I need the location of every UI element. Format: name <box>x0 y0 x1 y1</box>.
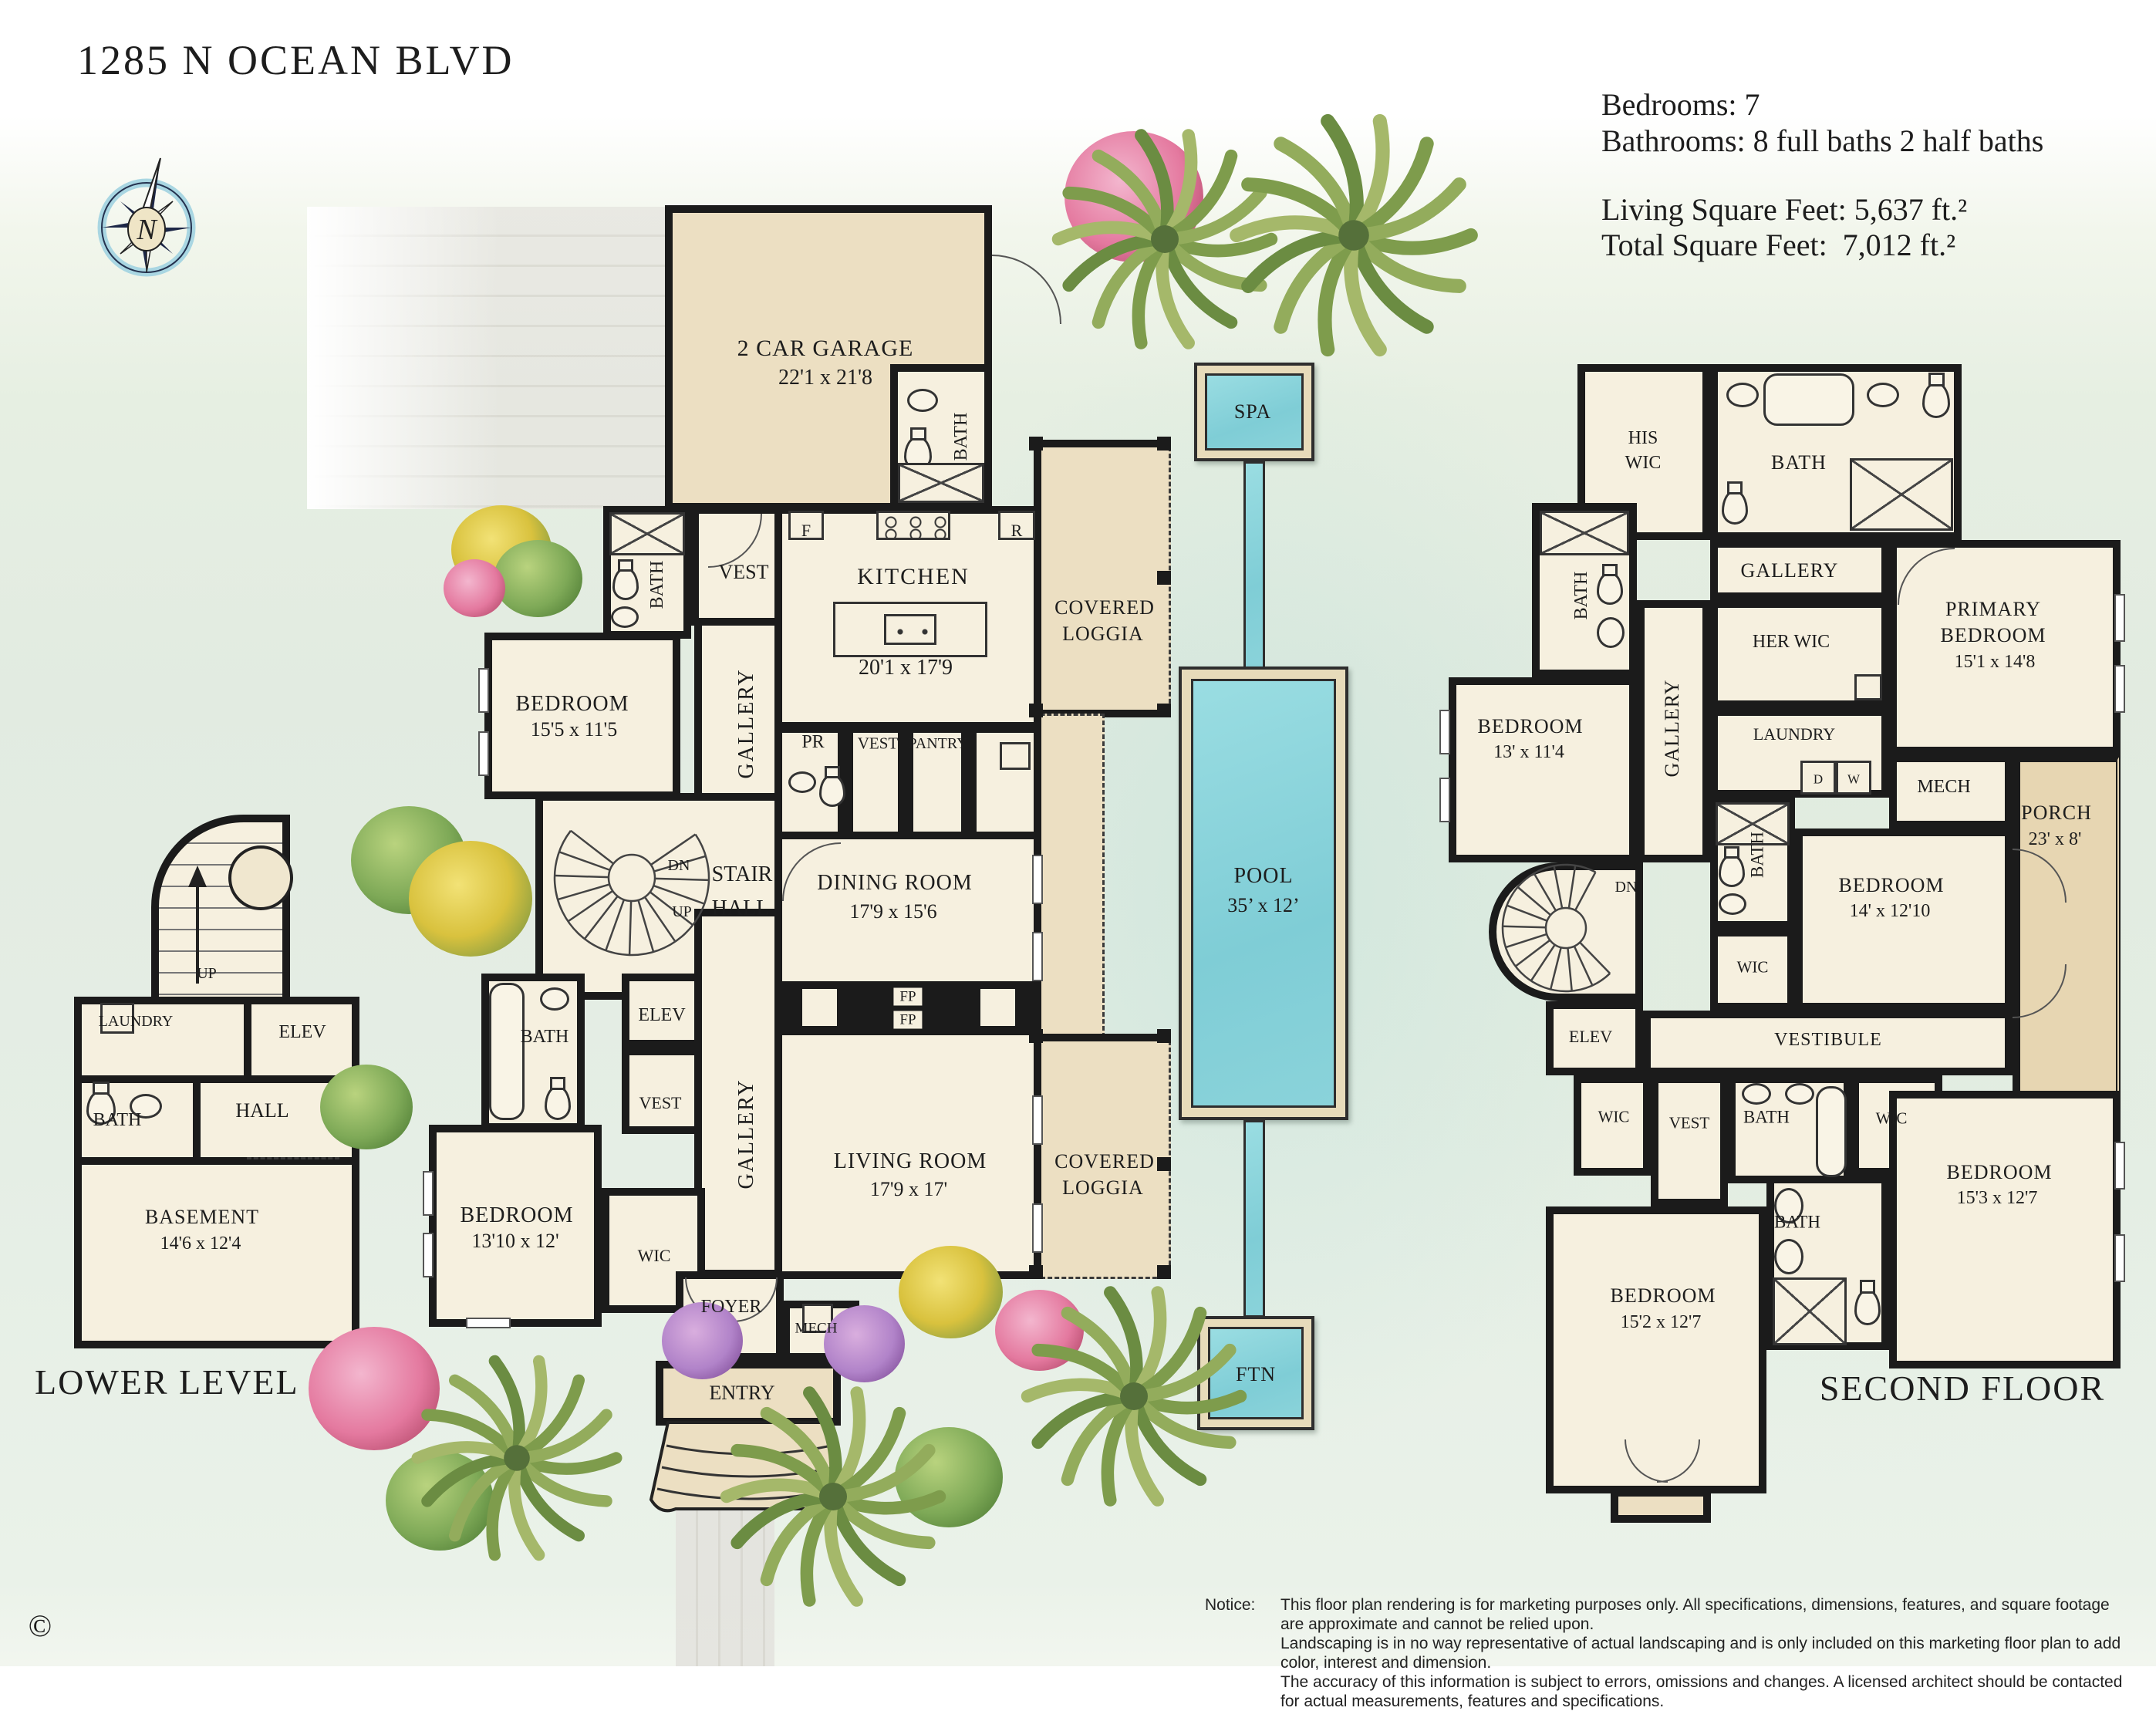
hall1-label: HALL <box>712 898 770 920</box>
stair-up-label: UP <box>672 904 692 920</box>
room-bedroom3 <box>1449 677 1637 862</box>
shower <box>1850 458 1953 531</box>
kitchen-label: KITCHEN <box>857 565 970 589</box>
loggia-post <box>1029 1029 1043 1043</box>
bath2-up-label: BATH <box>1743 1109 1790 1126</box>
dining-dims: 17'9 x 15'6 <box>849 902 936 922</box>
her-wic-sink <box>1854 674 1882 700</box>
shower <box>1773 1277 1847 1345</box>
shower <box>609 512 685 555</box>
sink <box>907 389 938 412</box>
bathtub <box>489 983 525 1120</box>
copyright-mark: © <box>29 1611 52 1642</box>
room-vest-small2 <box>1651 1075 1728 1206</box>
d-label: D <box>1814 773 1823 786</box>
plan-title: 1285 N OCEAN BLVD <box>77 39 515 81</box>
bedroom4-dims: 14' x 12'10 <box>1850 902 1931 920</box>
pool <box>1179 667 1348 1120</box>
loggia-post <box>1029 704 1043 717</box>
sink <box>1719 893 1746 915</box>
fp2-label: FP <box>893 1011 922 1029</box>
shower <box>1540 511 1629 555</box>
bathtub <box>1816 1086 1847 1177</box>
ll-hall-opening <box>247 1157 339 1159</box>
shower <box>898 463 984 503</box>
window <box>1439 778 1450 822</box>
garage-dims: 22'1 x 21'8 <box>778 367 872 389</box>
svg-text:N: N <box>136 214 158 246</box>
spa-channel <box>1243 461 1265 670</box>
living-dims: 17'9 x 17' <box>870 1179 947 1200</box>
lower-stair-newel <box>228 845 293 910</box>
range-label: R <box>1011 522 1023 539</box>
sink <box>1597 617 1625 648</box>
range-stove <box>876 511 950 540</box>
toilet <box>545 1086 571 1120</box>
floor-plan-page: N 1285 N OCEAN BLVDBedrooms: 7Bathrooms:… <box>0 0 2156 1666</box>
sink <box>1726 383 1759 407</box>
bath2-left-label: BATH <box>1572 572 1591 620</box>
sink <box>788 771 816 793</box>
bath-mid-label: BATH <box>521 1028 569 1046</box>
sink <box>1785 1083 1814 1105</box>
vest-small2-label: VEST <box>1669 1115 1710 1132</box>
bedroom1-dims: 15'5 x 11'5 <box>531 720 617 740</box>
entry-label: ENTRY <box>709 1383 774 1403</box>
stair-dn-label: DN <box>668 858 690 873</box>
garage-label: 2 CAR GARAGE <box>737 337 914 360</box>
w-label: W <box>1847 773 1860 786</box>
driveway-fade <box>307 207 500 509</box>
bath2-top-label: BATH <box>1771 453 1827 473</box>
her-wic-label: HER WIC <box>1753 633 1830 651</box>
wic-left2-label: WIC <box>1598 1109 1630 1125</box>
toilet <box>1722 491 1748 525</box>
plant-yellow-bush <box>409 841 532 957</box>
loggia-post <box>1157 571 1171 585</box>
bedroom4-label: BEDROOM <box>1838 876 1944 896</box>
bedroom6-entry-step <box>1611 1489 1711 1523</box>
compass-rose-icon: N <box>85 154 208 285</box>
laundry2-label: LAUNDRY <box>1753 726 1835 743</box>
bedroom5-dims: 15'3 x 12'7 <box>1957 1189 2038 1207</box>
window <box>1439 710 1450 754</box>
pool-deck-walkway <box>1034 714 1105 1038</box>
window <box>478 668 489 713</box>
vest-mid-label: VEST <box>639 1095 682 1112</box>
bedroom3-label: BEDROOM <box>1477 717 1583 737</box>
toilet <box>819 775 845 807</box>
loggia-post <box>1029 1265 1043 1279</box>
loggia-post <box>1029 437 1043 451</box>
window <box>1032 932 1043 981</box>
elev1-label: ELEV <box>638 1006 685 1024</box>
bath-tl-label: BATH <box>648 561 666 609</box>
notice-prefix: Notice: <box>1205 1595 1280 1634</box>
plant-green-bush <box>494 540 582 617</box>
elev2-label: ELEV <box>1569 1028 1612 1045</box>
ll-basement-label: BASEMENT <box>145 1207 259 1227</box>
vestibule-label: VESTIBULE <box>1774 1031 1882 1049</box>
window <box>478 731 489 776</box>
loggia-post <box>1157 1157 1171 1171</box>
sink <box>611 606 639 628</box>
ftn-label: FTN <box>1236 1365 1276 1385</box>
wic-mid-label: WIC <box>1737 960 1769 976</box>
foyer-label: FOYER <box>701 1298 762 1316</box>
pantry-label: PANTRY <box>908 736 967 751</box>
dining-label: DINING ROOM <box>817 872 973 894</box>
fireplace-jamb-right <box>1015 987 1037 1029</box>
loggia-post <box>1157 437 1171 451</box>
stair2-dn-label: DN <box>1615 879 1638 895</box>
bedroom1-label: BEDROOM <box>515 694 629 715</box>
palm-tree <box>717 1381 949 1612</box>
window <box>423 1171 434 1216</box>
primary-l1: PRIMARY <box>1945 599 2041 619</box>
loggia-post <box>1157 1029 1171 1043</box>
loggia-bot-l2: LOGGIA <box>1062 1178 1144 1198</box>
room-covered-loggia-top <box>1034 440 1171 717</box>
stat-bedrooms: Bedrooms: 7 <box>1601 89 1760 120</box>
bedroom3-dims: 13' x 11'4 <box>1493 743 1564 761</box>
room-vest-mid <box>622 1048 705 1134</box>
loggia-post <box>1157 1265 1171 1279</box>
living-label: LIVING ROOM <box>834 1151 987 1173</box>
toilet <box>1719 855 1745 887</box>
toilet <box>1597 572 1623 605</box>
pool-dims: 35’ x 12’ <box>1227 896 1299 916</box>
sink <box>1867 383 1899 407</box>
room-bedroom1 <box>484 633 680 799</box>
toilet <box>1854 1290 1881 1325</box>
window <box>1032 1203 1043 1253</box>
mech2-label: MECH <box>1917 778 1970 796</box>
window <box>2114 665 2125 713</box>
notice-line: This floor plan rendering is for marketi… <box>1280 1595 2131 1634</box>
porch-dims: 23' x 8' <box>2029 830 2082 849</box>
vest2-label: VEST <box>858 736 899 752</box>
vest1-label: VEST <box>719 562 769 582</box>
plant-yellow-bush <box>899 1246 1003 1338</box>
sink <box>1742 1083 1771 1105</box>
palm-tree <box>1018 1281 1250 1512</box>
stair-label: STAIR <box>712 864 773 886</box>
window <box>1032 855 1043 904</box>
wic1-label: WIC <box>638 1247 671 1264</box>
island-sink <box>884 614 936 645</box>
window <box>2114 1234 2125 1282</box>
gallery2h-label: GALLERY <box>1741 561 1839 581</box>
notice-line: The accuracy of this information is subj… <box>1280 1672 2131 1711</box>
bedroom5-label: BEDROOM <box>1946 1163 2052 1183</box>
window <box>2114 594 2125 642</box>
second-floor-title: SECOND FLOOR <box>1820 1371 2105 1406</box>
ll-bath-label: BATH <box>93 1111 142 1129</box>
spa-label: SPA <box>1234 402 1271 422</box>
his-wic-l1: HIS <box>1628 429 1658 447</box>
bath2-mid-label: BATH <box>1749 832 1766 878</box>
window <box>1032 1095 1043 1145</box>
gallery-bot-label: GALLERY <box>736 1078 757 1189</box>
garage-bath-label: BATH <box>952 413 970 461</box>
bathtub <box>1763 373 1854 426</box>
window <box>2114 1142 2125 1190</box>
palm-tree <box>1226 108 1481 363</box>
bedroom6-dims: 15'2 x 12'7 <box>1621 1313 1702 1331</box>
his-wic-l2: WIC <box>1625 454 1662 472</box>
plant-green-bush <box>320 1065 413 1149</box>
loggia-post <box>1157 704 1171 717</box>
bedroom2-dims: 13'10 x 12' <box>471 1231 558 1251</box>
porch-label: PORCH <box>2021 803 2092 823</box>
primary-dims: 15'1 x 14'8 <box>1955 653 2036 671</box>
fridge-label: F <box>801 522 811 539</box>
loggia-top-l1: COVERED <box>1054 598 1155 618</box>
loggia-bot-l1: COVERED <box>1054 1152 1155 1172</box>
kitchen-dims: 20'1 x 17'9 <box>859 657 953 679</box>
lower-level-title: LOWER LEVEL <box>35 1365 299 1400</box>
ll-laundry-label: LAUNDRY <box>99 1014 174 1029</box>
pr-label: PR <box>801 733 824 751</box>
window <box>466 1318 511 1328</box>
gallery-top-label: GALLERY <box>736 668 757 778</box>
notice-block: Notice: This floor plan rendering is for… <box>1205 1595 2131 1711</box>
primary-l2: BEDROOM <box>1940 626 2046 646</box>
ll-up-label: UP <box>197 966 217 981</box>
plant-purple-bush <box>824 1305 905 1382</box>
loggia-top-l2: LOGGIA <box>1062 624 1144 644</box>
bedroom6-label: BEDROOM <box>1610 1286 1716 1306</box>
gallery2v-label: GALLERY <box>1662 680 1682 778</box>
fp1-label: FP <box>893 988 922 1006</box>
stat-living-sqft: Living Square Feet: 5,637 ft.² <box>1601 194 1967 225</box>
pantry-sink <box>1000 742 1031 770</box>
mech1-label: MECH <box>795 1321 838 1336</box>
toilet <box>1922 383 1950 418</box>
stat-bathrooms: Bathrooms: 8 full baths 2 half baths <box>1601 126 2043 157</box>
plant-pink-bush <box>444 559 505 617</box>
room-bedroom5 <box>1889 1091 2121 1368</box>
ll-basement-dims: 14'6 x 12'4 <box>160 1234 241 1253</box>
palm-tree <box>409 1350 625 1566</box>
notice-line: Landscaping is in no way representative … <box>1280 1634 2131 1672</box>
ll-hall-label: HALL <box>235 1101 288 1121</box>
ll-elev-label: ELEV <box>278 1023 326 1041</box>
stat-total-sqft: Total Square Feet: 7,012 ft.² <box>1601 230 1955 261</box>
wic-right2-label: WIC <box>1876 1111 1908 1127</box>
toilet <box>612 568 639 600</box>
sink <box>1774 1239 1803 1274</box>
window <box>423 1233 434 1277</box>
fireplace-jamb-left <box>779 987 802 1029</box>
bath2-low-label: BATH <box>1774 1213 1820 1231</box>
bedroom2-label: BEDROOM <box>460 1205 573 1227</box>
pool-label: POOL <box>1233 866 1293 887</box>
